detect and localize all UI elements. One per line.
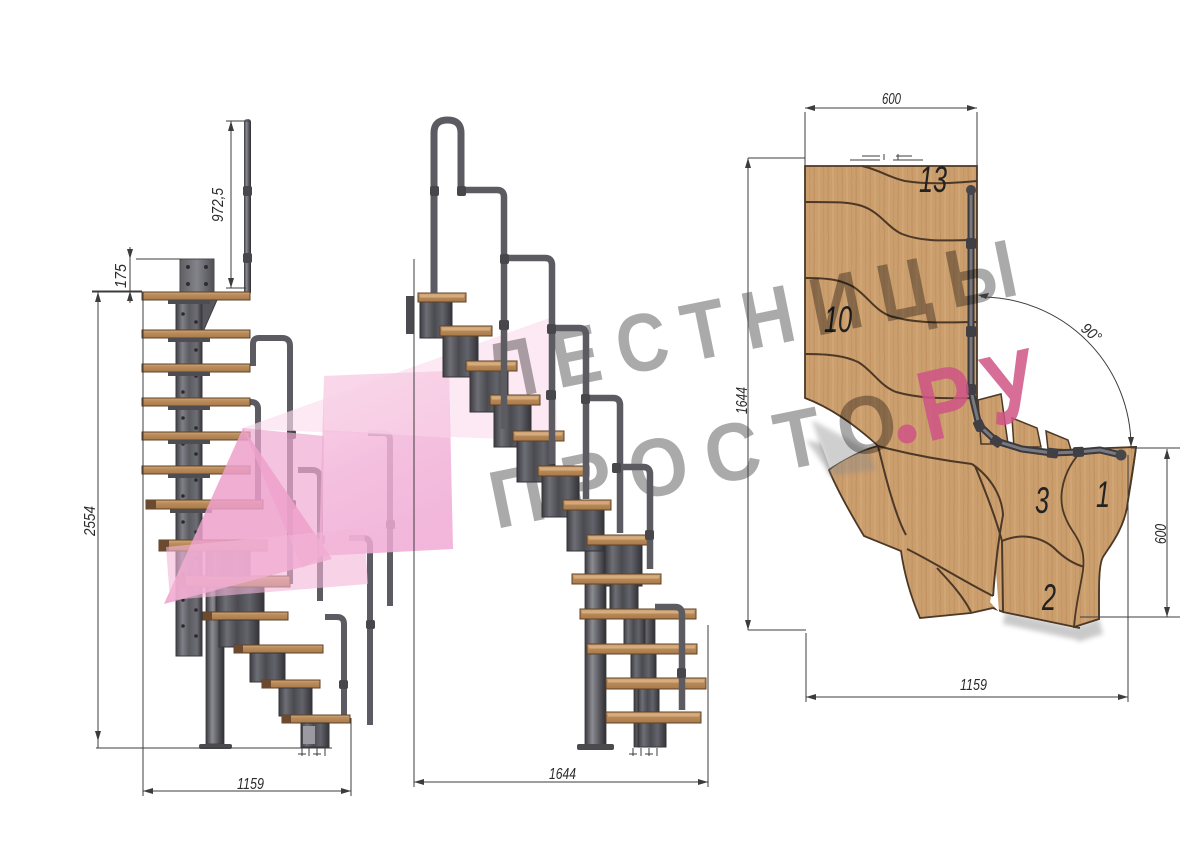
- svg-text:3: 3: [1035, 479, 1049, 521]
- svg-text:13: 13: [919, 158, 947, 200]
- svg-text:972,5: 972,5: [210, 188, 227, 222]
- svg-text:2554: 2554: [82, 506, 99, 537]
- svg-text:1159: 1159: [237, 776, 264, 793]
- svg-text:1644: 1644: [734, 387, 751, 414]
- svg-text:2: 2: [1041, 576, 1056, 618]
- svg-text:1644: 1644: [549, 766, 576, 783]
- svg-text:1: 1: [1096, 473, 1110, 515]
- svg-text:600: 600: [882, 91, 901, 108]
- svg-text:600: 600: [1153, 524, 1170, 544]
- svg-text:175: 175: [113, 264, 130, 288]
- svg-text:1159: 1159: [960, 677, 987, 694]
